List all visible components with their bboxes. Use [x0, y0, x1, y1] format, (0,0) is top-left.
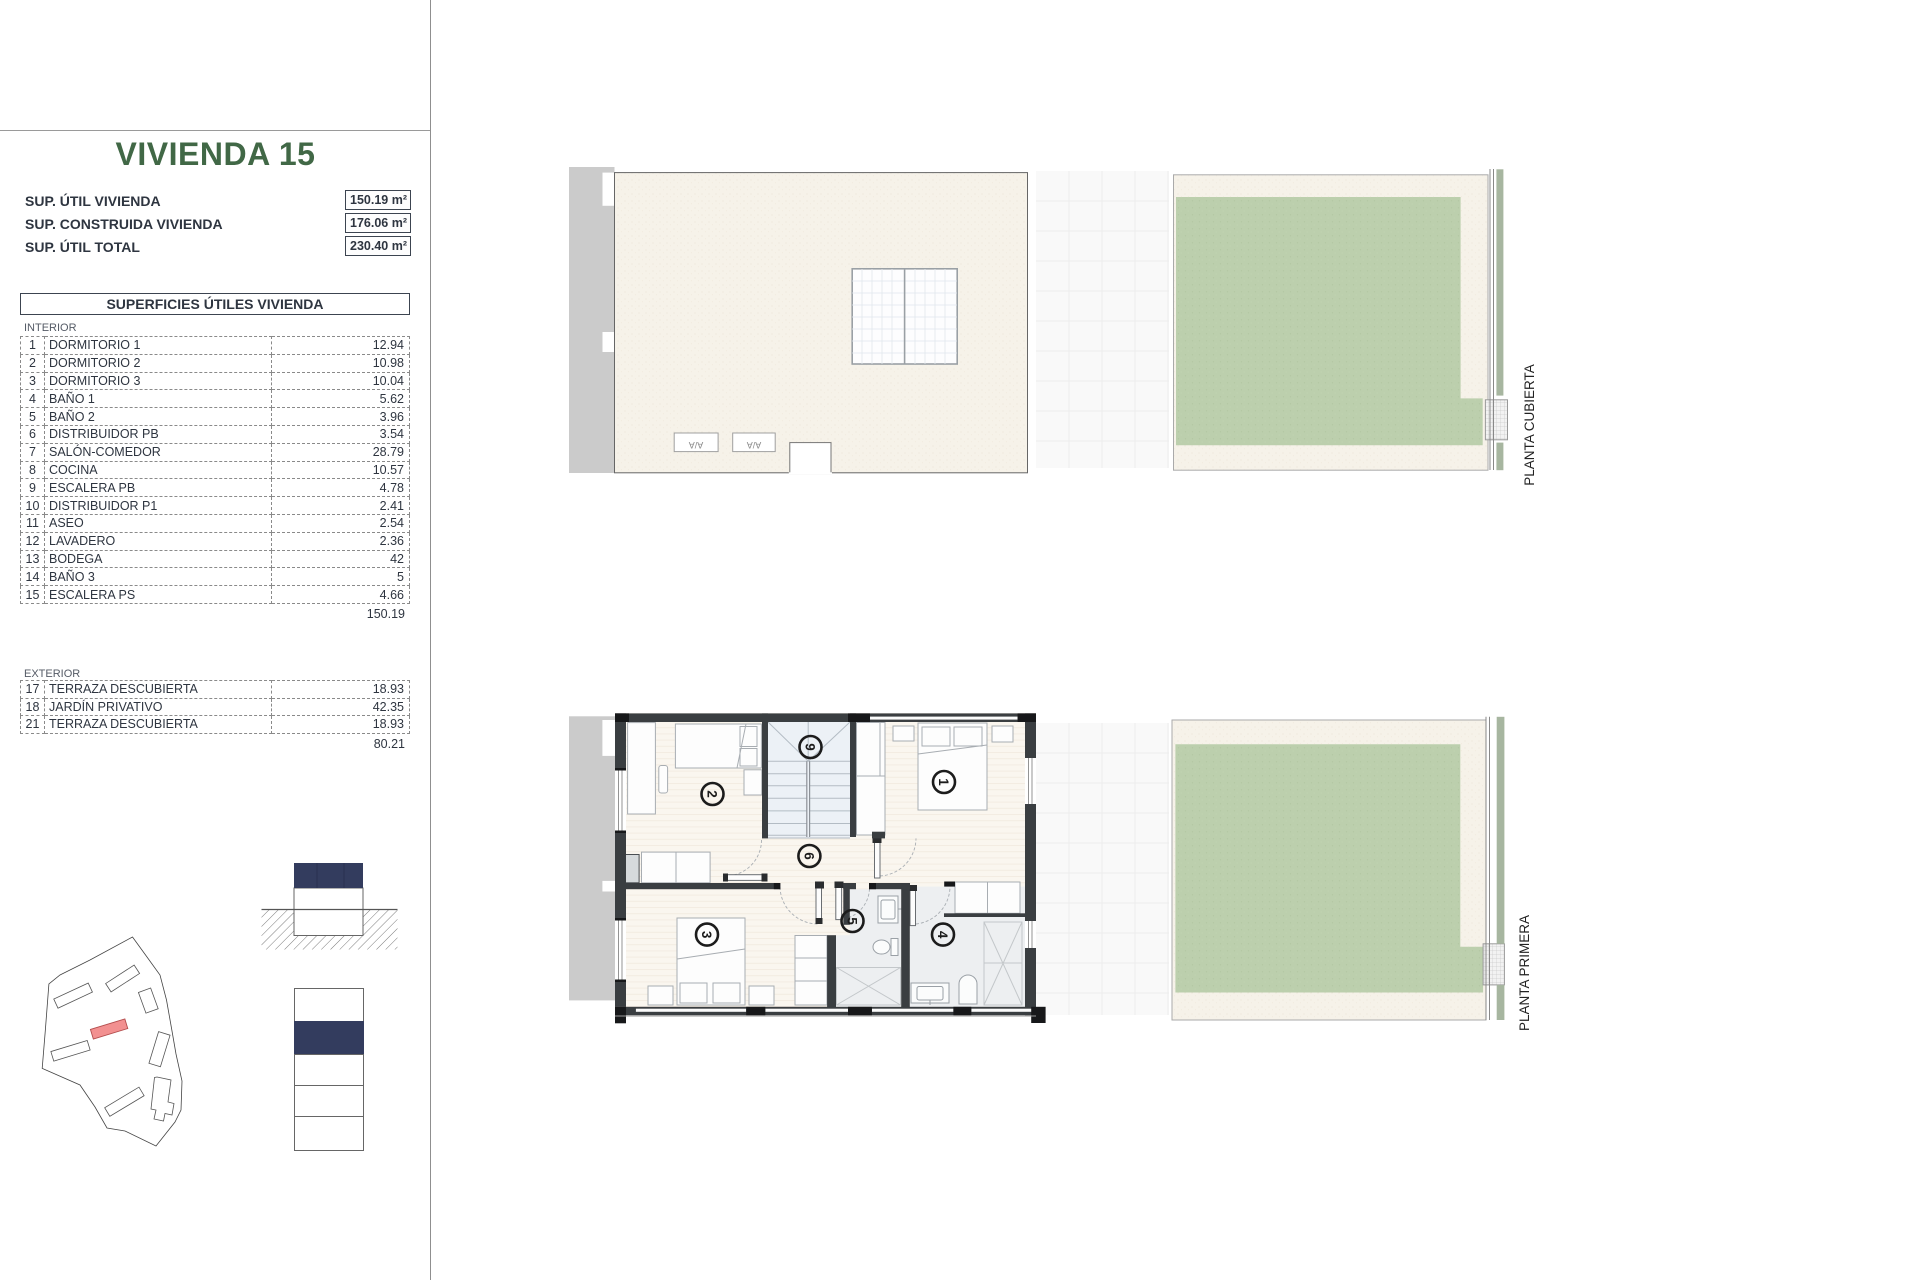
svg-text:PLANTA PRIMERA: PLANTA PRIMERA — [1517, 915, 1532, 1031]
svg-text:PLANTA CUBIERTA: PLANTA CUBIERTA — [1522, 364, 1537, 486]
svg-text:6: 6 — [801, 852, 816, 860]
svg-text:3: 3 — [699, 931, 714, 939]
svg-text:9: 9 — [803, 743, 818, 751]
svg-text:A/A: A/A — [689, 440, 704, 450]
svg-text:5: 5 — [845, 917, 860, 925]
svg-text:4: 4 — [935, 931, 950, 939]
svg-text:2: 2 — [705, 790, 720, 798]
svg-text:A/A: A/A — [747, 440, 762, 450]
svg-text:1: 1 — [936, 778, 951, 786]
